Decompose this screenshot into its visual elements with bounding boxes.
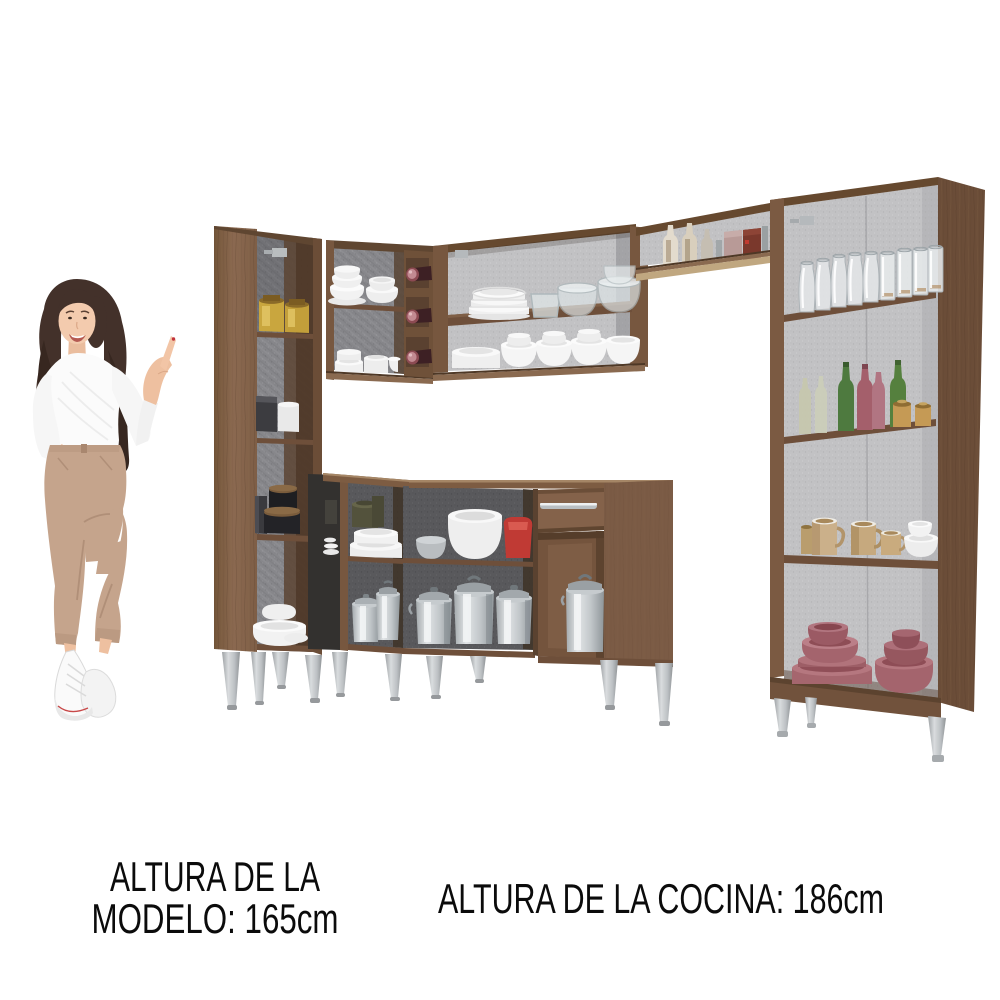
svg-text:MODELO: 165cm: MODELO: 165cm bbox=[92, 895, 339, 942]
svg-text:ALTURA DE LA: ALTURA DE LA bbox=[110, 853, 320, 900]
svg-text:ALTURA DE LA COCINA: 186cm: ALTURA DE LA COCINA: 186cm bbox=[438, 875, 884, 922]
